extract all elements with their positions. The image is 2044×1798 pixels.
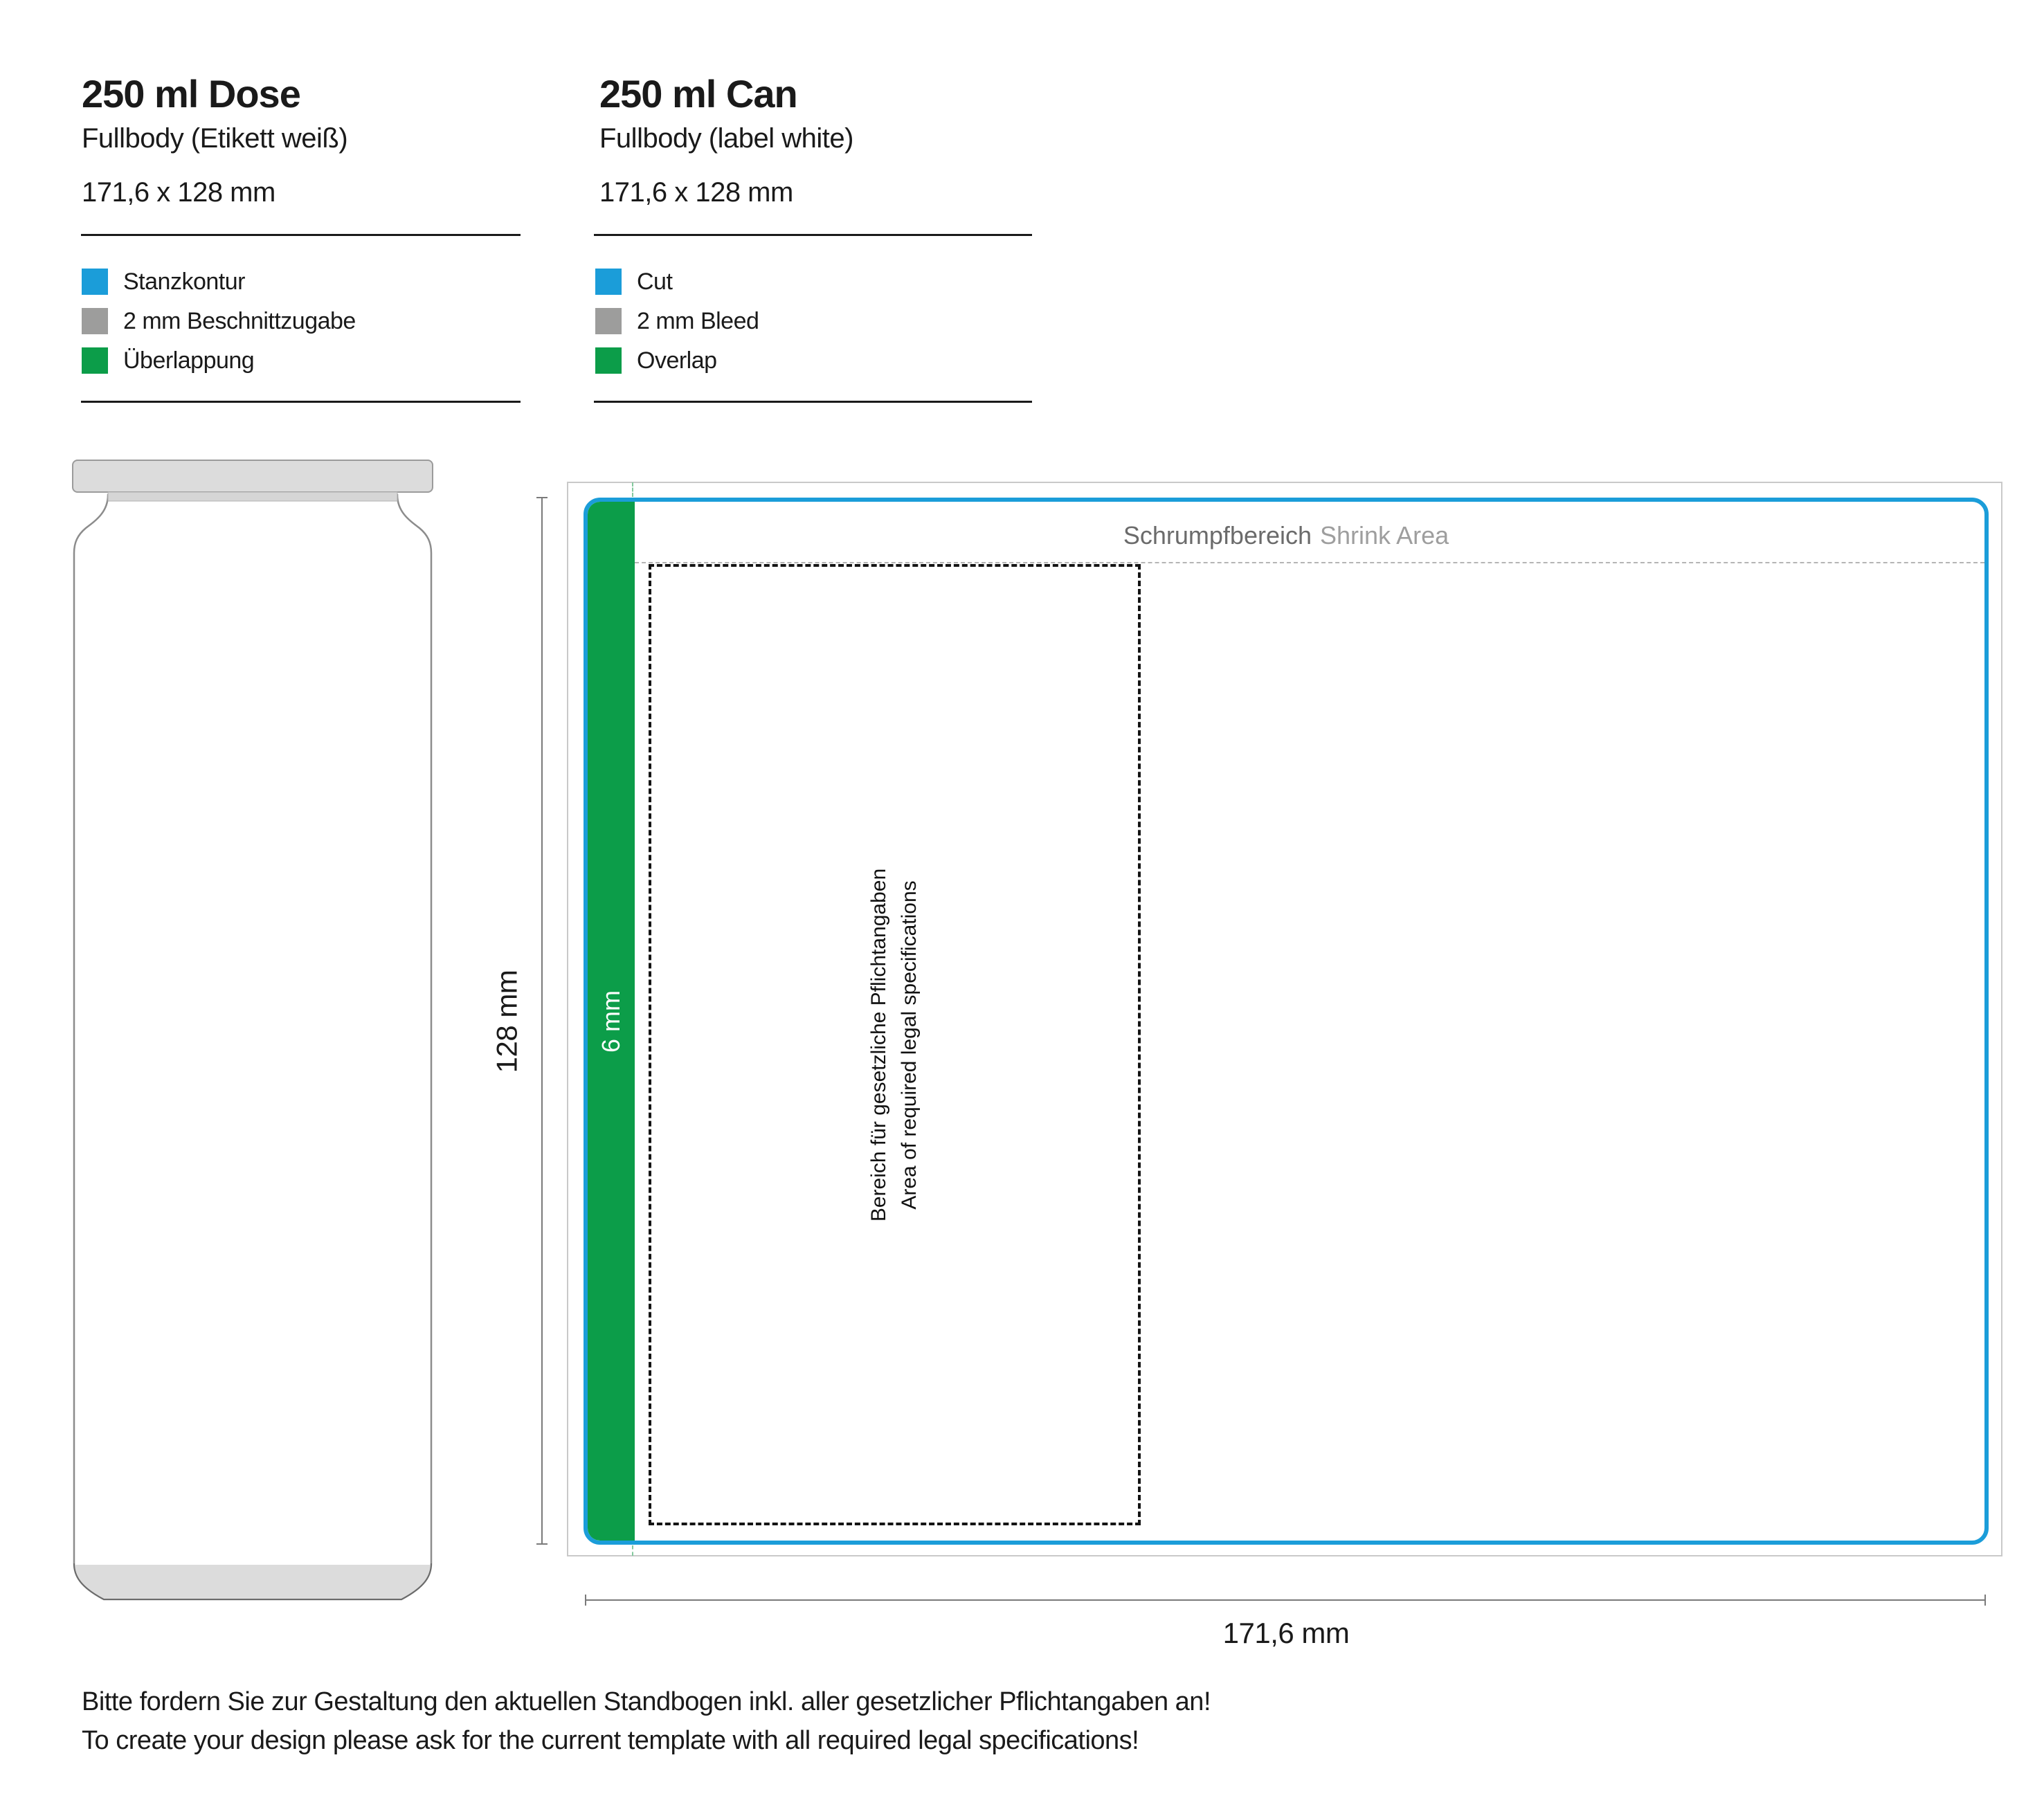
legend-label-bleed-de: 2 mm Beschnittzugabe [123,308,356,335]
legend-row-bleed-en: 2 mm Bleed [595,308,759,334]
overlap-bleed-tick-bottom [632,1545,633,1556]
height-dimension-line [541,498,543,1545]
subtitle-en: Fullbody (label white) [599,125,853,152]
legend-label-cut-de: Stanzkontur [123,269,245,296]
overlap-width-label: 6 mm [597,990,626,1053]
shrink-area-label-en: Shrink Area [1312,521,1449,550]
page-title-en: 250 ml Can [599,75,797,113]
shrink-area-label-de: Schrumpfbereich [1123,521,1312,550]
overlap-bleed-tick-top [632,482,633,497]
legend-row-cut-en: Cut [595,269,672,295]
legend-row-cut-de: Stanzkontur [82,269,245,295]
size-label-de: 171,6 x 128 mm [82,179,275,206]
page-title-de: 250 ml Dose [82,75,300,113]
footer-note-en: To create your design please ask for the… [82,1727,1139,1754]
width-dimension-label: 171,6 mm [1223,1617,1350,1649]
overlap-strip: 6 mm [588,502,635,1541]
shrink-area-divider [635,562,1984,563]
legal-area-label: Bereich für gesetzliche Pflichtangaben A… [865,868,925,1221]
legend-row-bleed-de: 2 mm Beschnittzugabe [82,308,356,334]
width-dimension-tick-left [585,1595,586,1606]
legend-row-overlap-de: Überlappung [82,347,254,374]
page: 250 ml Dose Fullbody (Etikett weiß) 171,… [0,0,2044,1798]
can-illustration [69,459,436,1602]
legal-area-label-de: Bereich für gesetzliche Pflichtangaben [865,868,895,1221]
legend-label-bleed-en: 2 mm Bleed [637,308,759,335]
overlap-color-swatch [82,347,108,374]
legend-label-cut-en: Cut [637,269,672,296]
width-dimension-line [585,1599,1986,1601]
can-base [75,1565,431,1599]
divider-en-top [594,234,1032,236]
can-neck [108,492,397,501]
footer-note-de: Bitte fordern Sie zur Gestaltung den akt… [82,1689,1211,1715]
legal-area-label-en: Area of required legal specifications [895,868,925,1221]
legend-row-overlap-en: Overlap [595,347,717,374]
legal-area-outline: Bereich für gesetzliche Pflichtangaben A… [649,564,1141,1525]
shrink-area-label: SchrumpfbereichShrink Area [584,523,1989,548]
height-dimension-tick-bottom [536,1543,548,1545]
cut-color-swatch [595,269,622,295]
bleed-color-swatch [595,308,622,334]
bleed-color-swatch [82,308,108,334]
divider-de-bottom [81,401,521,403]
column-en-title: 250 ml Can [599,75,797,113]
overlap-color-swatch [595,347,622,374]
height-dimension-tick-top [536,497,548,498]
divider-de-top [81,234,521,236]
size-label-en: 171,6 x 128 mm [599,179,793,206]
can-lid [73,460,433,492]
subtitle-de: Fullbody (Etikett weiß) [82,125,347,152]
column-de-title: 250 ml Dose [82,75,300,113]
width-dimension-tick-right [1984,1595,1986,1606]
cut-color-swatch [82,269,108,295]
legend-label-overlap-de: Überlappung [123,347,254,374]
height-dimension-label: 128 mm [491,970,524,1073]
legend-label-overlap-en: Overlap [637,347,717,374]
height-dimension-label-wrap: 128 mm [478,498,536,1545]
width-dimension-label-wrap: 171,6 mm [584,1617,1989,1650]
can-body [74,495,431,1599]
divider-en-bottom [594,401,1032,403]
